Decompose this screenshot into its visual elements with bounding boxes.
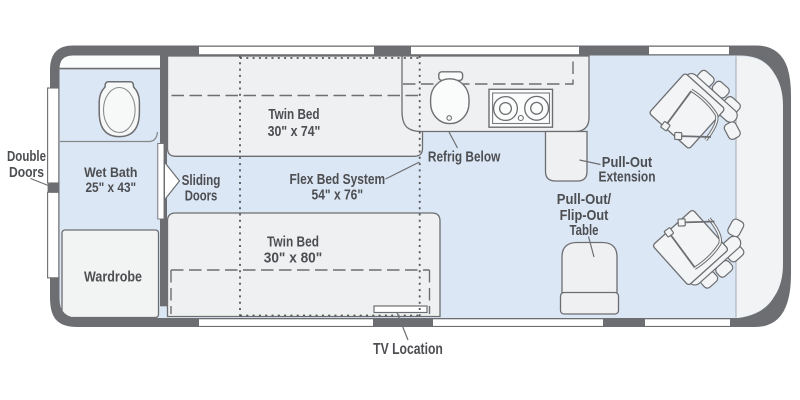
svg-text:Refrig Below: Refrig Below: [428, 148, 501, 165]
svg-text:Wardrobe: Wardrobe: [84, 269, 142, 286]
svg-text:54" x 76": 54" x 76": [312, 186, 364, 203]
svg-text:Doors: Doors: [185, 188, 218, 205]
svg-text:30" x 74": 30" x 74": [268, 123, 321, 140]
svg-text:Sliding: Sliding: [182, 172, 221, 189]
svg-text:Extension: Extension: [599, 169, 656, 186]
svg-text:Double: Double: [7, 148, 46, 165]
svg-text:Flex Bed System: Flex Bed System: [290, 171, 386, 188]
svg-text:Wet Bath: Wet Bath: [84, 164, 137, 180]
svg-text:TV Location: TV Location: [373, 341, 443, 358]
svg-text:Doors: Doors: [9, 164, 44, 181]
svg-text:Table: Table: [570, 222, 599, 239]
svg-text:30" x 80": 30" x 80": [264, 250, 323, 267]
svg-text:Twin Bed: Twin Bed: [267, 234, 319, 251]
svg-text:25" x 43": 25" x 43": [85, 179, 136, 195]
svg-text:Pull-Out/: Pull-Out/: [557, 191, 612, 208]
svg-text:Twin Bed: Twin Bed: [268, 106, 319, 123]
